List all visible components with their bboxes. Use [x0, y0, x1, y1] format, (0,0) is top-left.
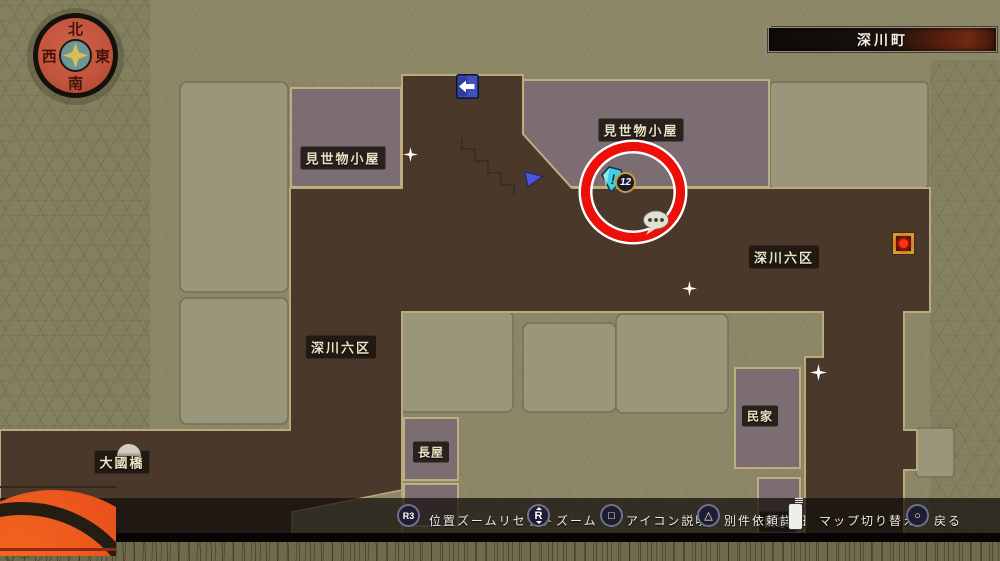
map-label-fukagawa-rokku-west: 深川六区: [306, 336, 376, 359]
bottom-black-strip: [0, 533, 1000, 542]
map-label-fukagawa-rokku-east: 深川六区: [749, 246, 819, 269]
map-label-misemonogoya-right: 見世物小屋: [598, 119, 683, 142]
r3-button-icon[interactable]: R3: [397, 504, 420, 527]
compass-star-icon: [63, 43, 88, 68]
map-label-nagaya: 長屋: [413, 442, 449, 463]
compass-west-label: 西: [42, 46, 57, 67]
compass-rose: 北 南 東 西: [33, 13, 118, 98]
mission-target-dot: [899, 239, 908, 248]
r-stick-button-icon[interactable]: R: [527, 504, 550, 527]
square-glyph: □: [608, 510, 615, 522]
door-exit-arrow-icon[interactable]: [456, 74, 479, 99]
control-label-zoom: ズーム: [556, 512, 598, 529]
location-banner: 深川町: [768, 27, 997, 52]
r3-button-glyph: R3: [403, 511, 415, 521]
city-block: [916, 428, 954, 477]
compass-north-label: 北: [68, 19, 83, 40]
circle-button-icon[interactable]: ○: [906, 504, 929, 527]
touchpad-lines-icon: [795, 498, 803, 503]
city-block: [180, 298, 288, 424]
control-label-back: 戻る: [934, 512, 962, 529]
map-geometry: [0, 0, 1000, 561]
compass-hub: [59, 39, 92, 72]
ornament-top-line: [0, 486, 116, 488]
banner-bracket: [764, 26, 771, 58]
map-label-minka: 民家: [742, 406, 778, 427]
compass-south-label: 南: [68, 72, 83, 93]
city-block: [388, 311, 513, 412]
map-label-misemonogoya-left: 見世物小屋: [300, 147, 385, 170]
touchpad-button-icon[interactable]: [788, 503, 803, 530]
stick-down-arrow-icon: [536, 521, 542, 524]
ornament-red-line: [0, 548, 116, 551]
stick-up-arrow-icon: [536, 507, 542, 510]
location-name: 深川町: [857, 30, 908, 50]
r-stick-glyph: R: [535, 510, 543, 522]
city-block: [770, 82, 928, 188]
square-button-icon[interactable]: □: [600, 504, 623, 527]
speech-bubble-icon[interactable]: [642, 210, 670, 237]
circle-glyph: ○: [914, 510, 921, 522]
control-label-map-switch: マップ切り替え: [819, 512, 917, 529]
triangle-button-icon[interactable]: △: [697, 504, 720, 527]
compass-east-label: 東: [95, 46, 110, 67]
mission-target-square-icon[interactable]: [893, 233, 914, 254]
building-misemonogoya-left: [291, 88, 401, 187]
game-map-screen: 見世物小屋 見世物小屋 深川六区 深川六区 民家 長屋 大國橋 民家 ! 12: [0, 0, 1000, 561]
city-block: [523, 323, 616, 412]
bottom-ornament-band: [0, 542, 1000, 561]
city-block: [180, 82, 288, 292]
compass-face: 北 南 東 西: [38, 18, 113, 93]
triangle-glyph: △: [704, 509, 712, 522]
city-block: [616, 314, 728, 413]
corner-ornament: [0, 486, 116, 556]
player-direction-triangle-icon[interactable]: [523, 169, 544, 188]
